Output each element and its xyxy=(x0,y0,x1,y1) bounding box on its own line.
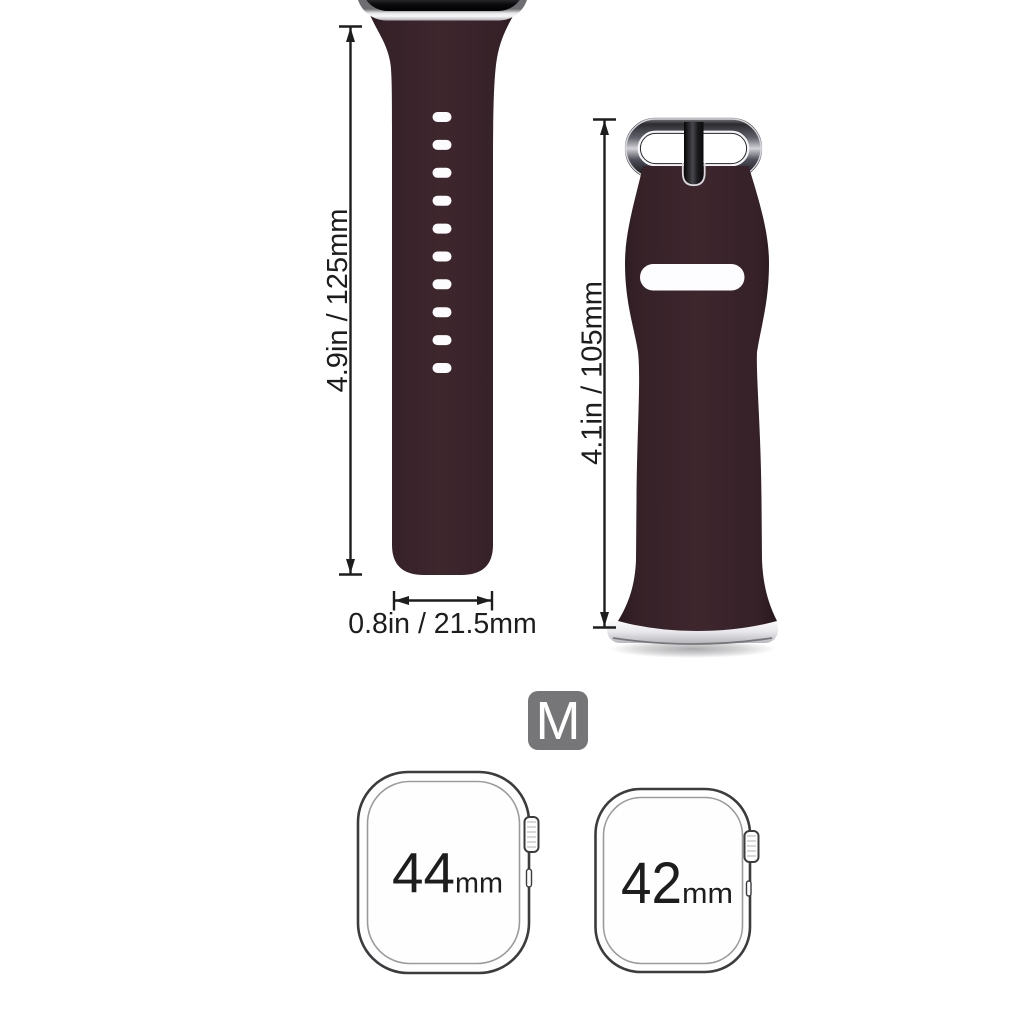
svg-text:M: M xyxy=(536,691,581,751)
svg-text:0.8in / 21.5mm: 0.8in / 21.5mm xyxy=(348,608,537,640)
svg-text:4.9in / 125mm: 4.9in / 125mm xyxy=(322,209,354,393)
svg-text:4.1in / 105mm: 4.1in / 105mm xyxy=(577,281,609,465)
